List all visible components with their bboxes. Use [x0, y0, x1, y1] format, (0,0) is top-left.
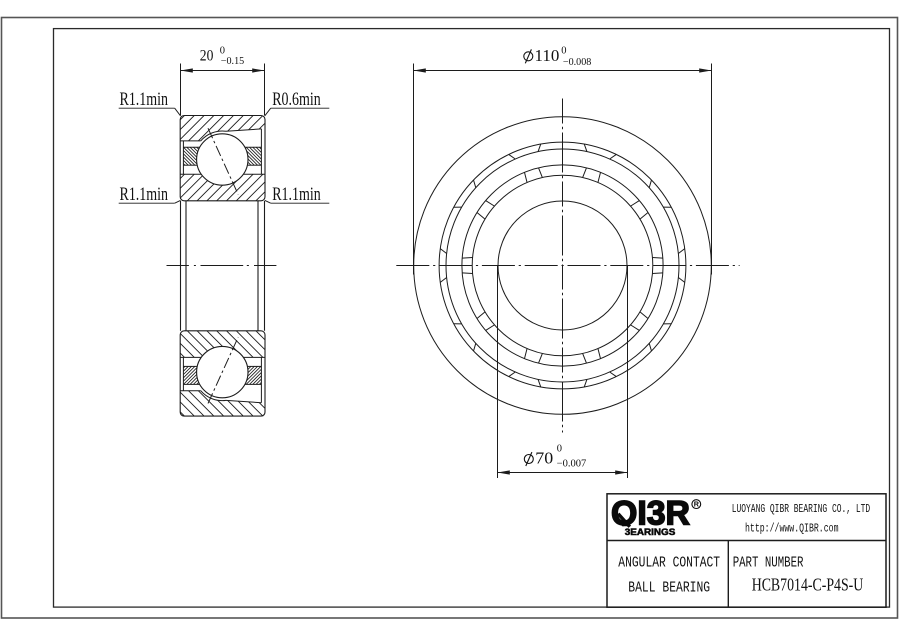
svg-text:PART NUMBER: PART NUMBER — [733, 556, 804, 572]
svg-text:70: 70 — [535, 448, 553, 467]
svg-text:R1.1min: R1.1min — [120, 89, 169, 110]
svg-text:R0.6min: R0.6min — [272, 89, 321, 110]
svg-text:HCB7014-C-P4S-U: HCB7014-C-P4S-U — [752, 575, 864, 595]
svg-text:−0.15: −0.15 — [221, 56, 244, 67]
svg-text:20: 20 — [200, 47, 214, 64]
svg-text:LUOYANG QIBR BEARING CO., LTD: LUOYANG QIBR BEARING CO., LTD — [732, 502, 871, 516]
svg-text:R1.1min: R1.1min — [120, 184, 169, 205]
svg-text:0: 0 — [220, 45, 225, 56]
svg-text:http://www.QIBR.com: http://www.QIBR.com — [745, 522, 839, 536]
svg-text:BALL BEARING: BALL BEARING — [628, 581, 710, 597]
svg-text:0: 0 — [561, 45, 566, 56]
svg-text:R: R — [694, 500, 700, 509]
svg-text:R1.1min: R1.1min — [272, 184, 321, 205]
svg-text:−0.007: −0.007 — [557, 459, 587, 470]
svg-text:ANGULAR CONTACT: ANGULAR CONTACT — [618, 556, 720, 572]
svg-text:3EARINGS: 3EARINGS — [625, 527, 676, 537]
svg-text:−0.008: −0.008 — [563, 57, 591, 68]
svg-text:110: 110 — [535, 46, 560, 65]
svg-text:0: 0 — [557, 444, 562, 455]
